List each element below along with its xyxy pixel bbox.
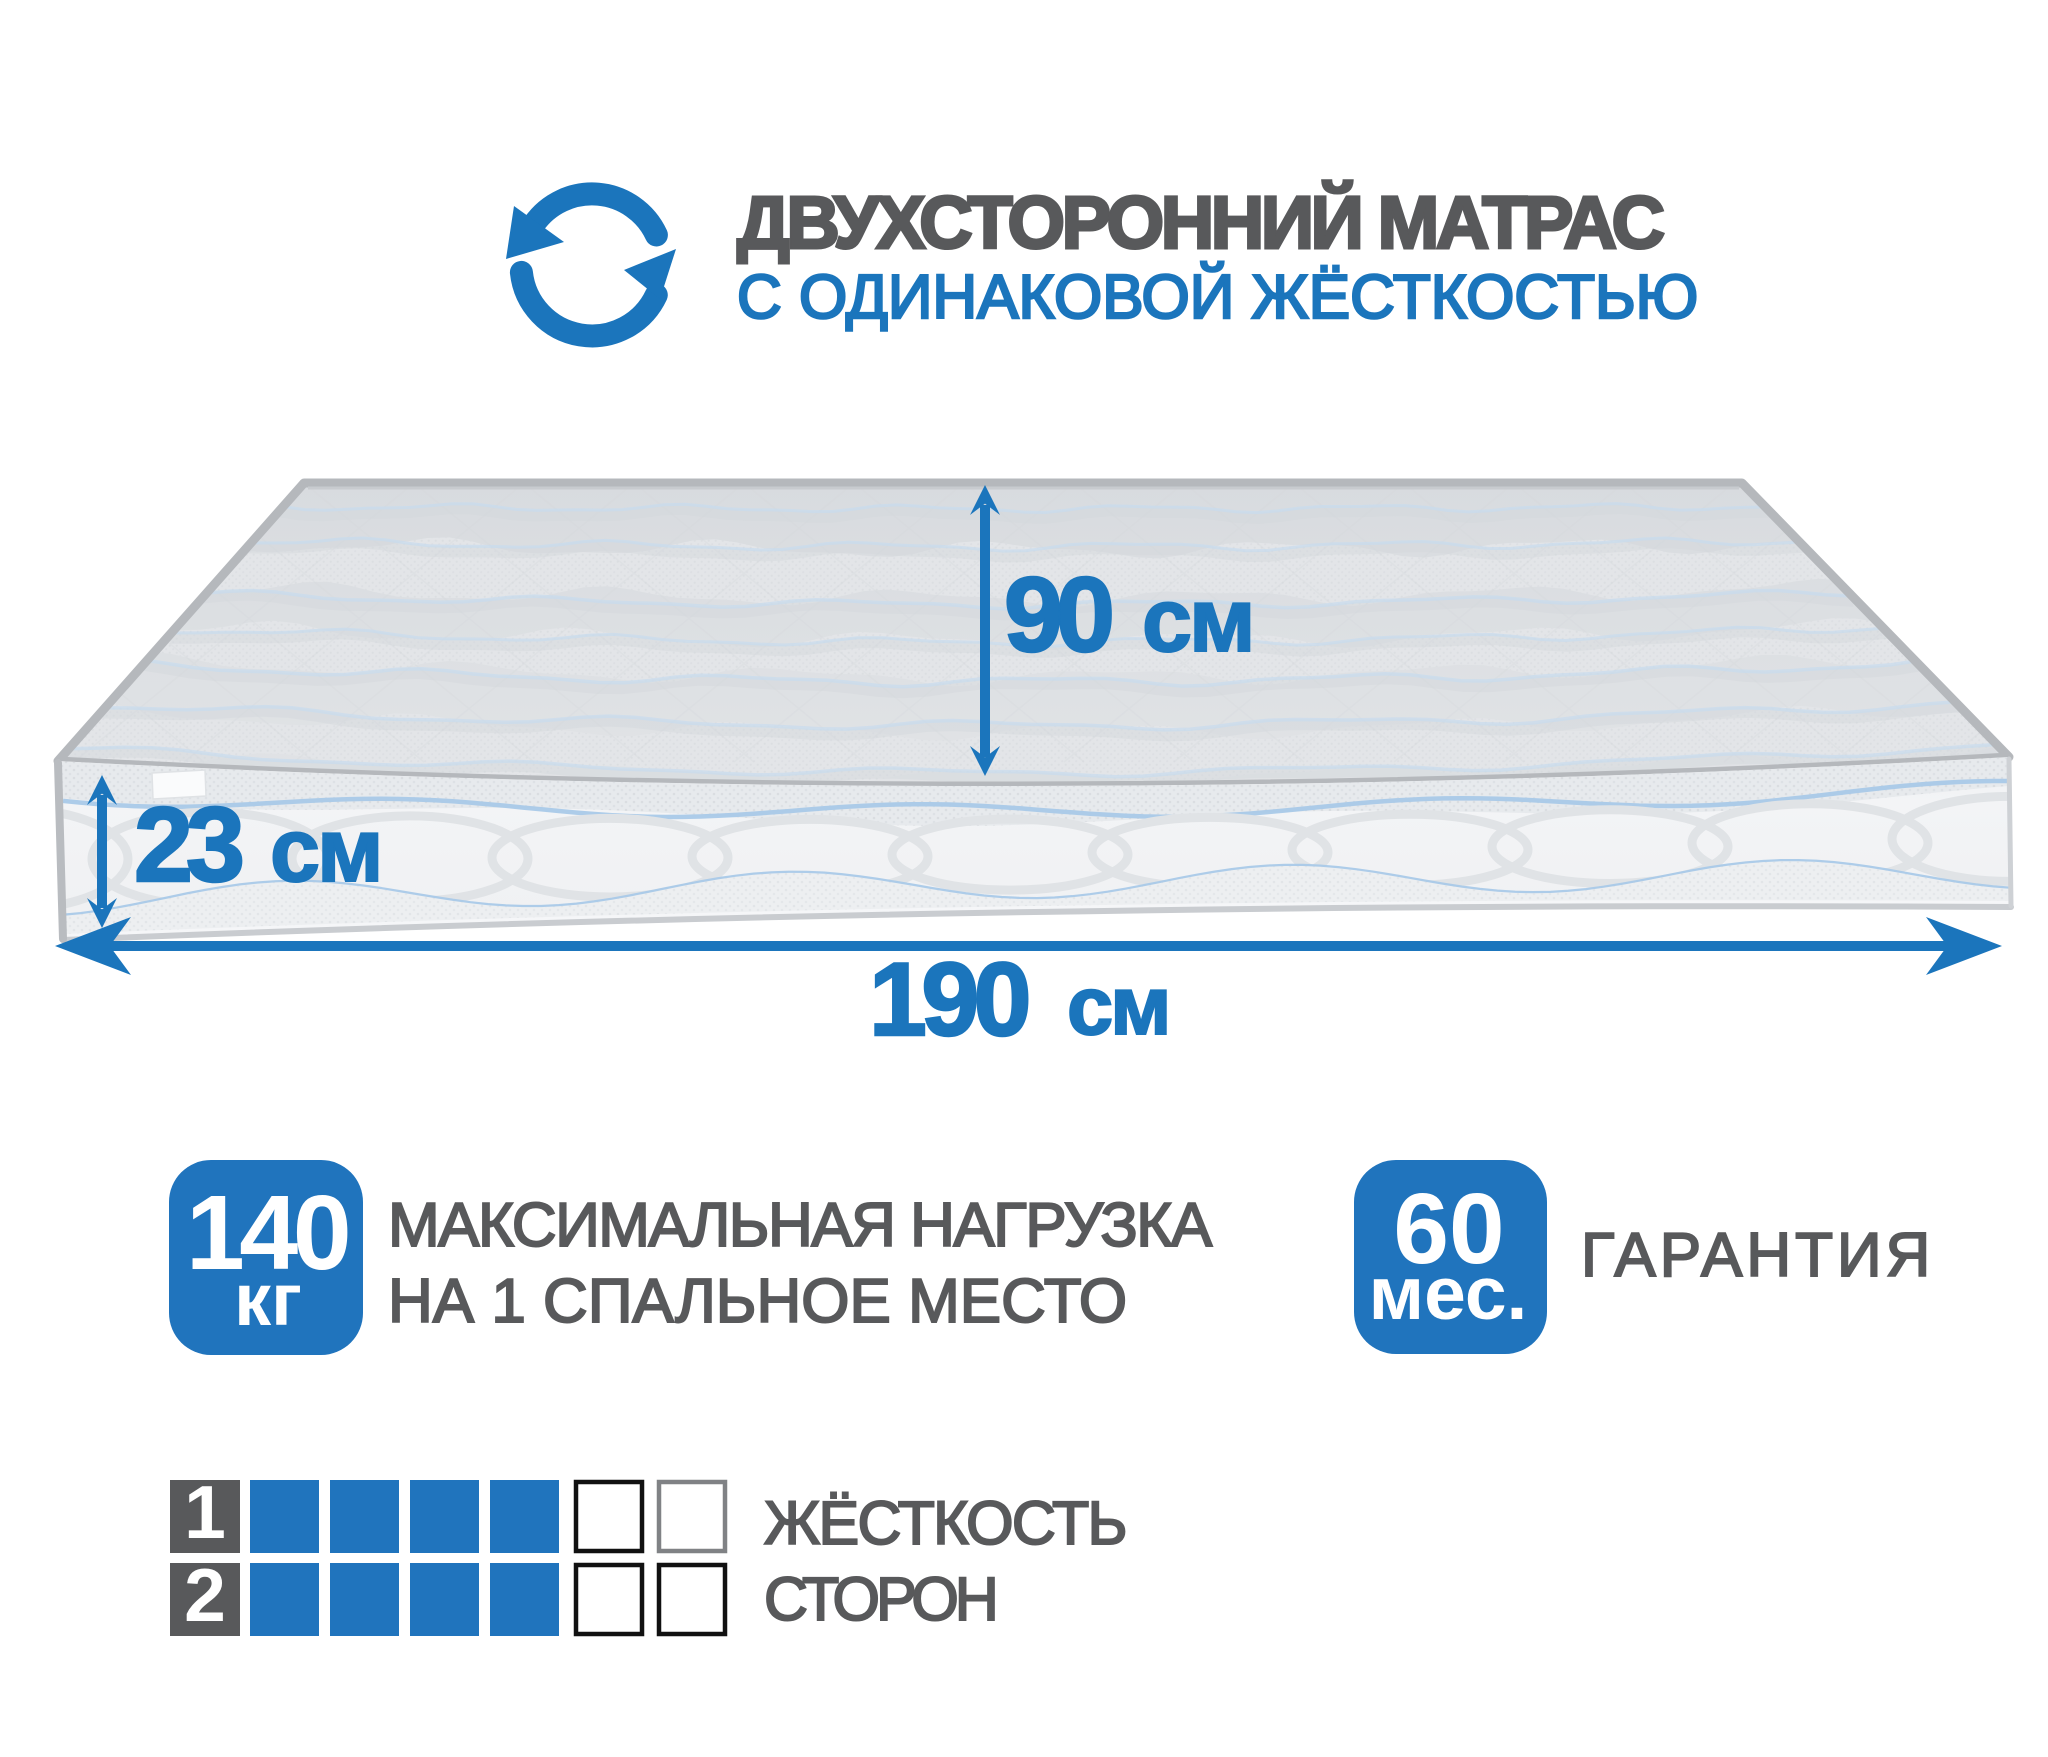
svg-text:90: 90	[1004, 556, 1111, 674]
svg-text:23: 23	[134, 786, 242, 904]
svg-text:см: см	[1142, 571, 1253, 671]
svg-text:2: 2	[184, 1553, 226, 1637]
svg-text:1: 1	[184, 1470, 226, 1554]
svg-text:см: см	[1067, 959, 1169, 1052]
svg-text:кг: кг	[234, 1258, 302, 1341]
svg-text:НА 1 СПАЛЬНОЕ МЕСТО: НА 1 СПАЛЬНОЕ МЕСТО	[388, 1267, 1127, 1336]
svg-text:ГАРАНТИЯ: ГАРАНТИЯ	[1581, 1221, 1934, 1290]
svg-text:мес.: мес.	[1369, 1251, 1528, 1335]
svg-text:190: 190	[869, 942, 1028, 1058]
svg-text:ДВУХСТОРОННИЙ МАТРАС: ДВУХСТОРОННИЙ МАТРАС	[737, 180, 1664, 264]
svg-text:см: см	[270, 801, 381, 901]
svg-text:МАКСИМАЛЬНАЯ НАГРУЗКА: МАКСИМАЛЬНАЯ НАГРУЗКА	[388, 1191, 1213, 1260]
svg-text:С ОДИНАКОВОЙ ЖЁСТКОСТЬЮ: С ОДИНАКОВОЙ ЖЁСТКОСТЬЮ	[737, 262, 1698, 332]
svg-text:СТОРОН: СТОРОН	[764, 1565, 995, 1633]
svg-text:ЖЁСТКОСТЬ: ЖЁСТКОСТЬ	[764, 1489, 1126, 1557]
